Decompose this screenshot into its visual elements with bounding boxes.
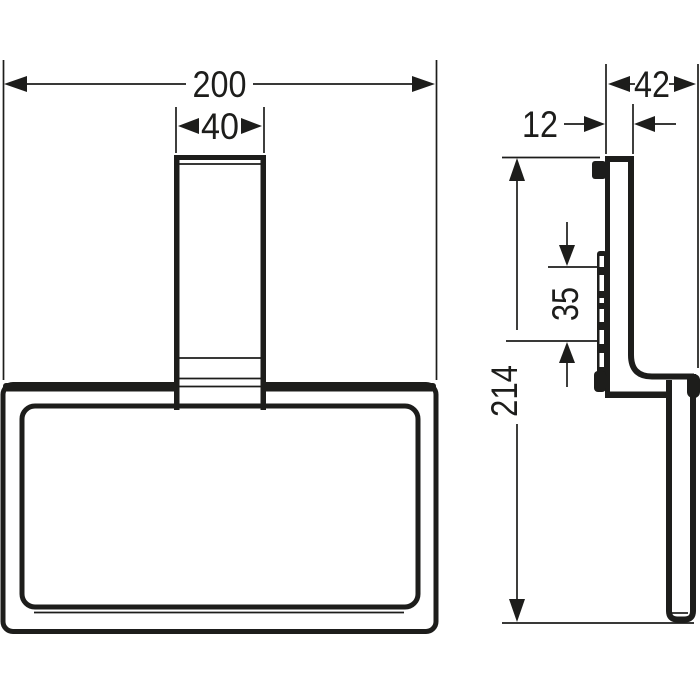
post-top-edge bbox=[174, 155, 266, 160]
rail-slot bbox=[600, 256, 605, 267]
arrow-down-icon bbox=[509, 599, 525, 622]
dim-label-overall-depth: 42 bbox=[634, 64, 670, 105]
arrow-up-icon bbox=[509, 158, 525, 181]
arrow-left-icon bbox=[634, 116, 655, 132]
rail-bottom-tab bbox=[594, 371, 606, 392]
post-left-edge bbox=[174, 155, 180, 410]
side-view: 42 12 214 35 bbox=[484, 64, 700, 623]
towel-ring-dimension-drawing: 200 40 bbox=[0, 0, 700, 700]
arrow-right-icon bbox=[584, 116, 605, 132]
front-view: 200 40 bbox=[3, 60, 437, 632]
post-right-edge bbox=[261, 155, 267, 410]
arrow-up-icon bbox=[559, 342, 575, 363]
arrow-left-icon bbox=[608, 76, 630, 92]
towel-ring-side bbox=[592, 156, 700, 620]
technical-drawing-canvas: 200 40 bbox=[0, 0, 700, 700]
arrow-right-icon bbox=[412, 76, 435, 92]
dim-label-plate-depth: 12 bbox=[522, 104, 558, 145]
arrow-left-icon bbox=[178, 118, 199, 134]
dimension-overall-height: 214 bbox=[484, 158, 525, 622]
ring-outer-outline bbox=[3, 385, 436, 632]
plate-front-edge-and-arm-top bbox=[631, 161, 694, 377]
arrow-right-icon bbox=[674, 76, 696, 92]
dimension-mounting-span: 35 bbox=[545, 222, 586, 387]
ring-top-joint bbox=[687, 374, 700, 398]
towel-ring-front bbox=[3, 155, 436, 632]
dimension-post-width: 40 bbox=[178, 106, 262, 147]
rail-slot bbox=[600, 298, 605, 303]
rail-slot bbox=[600, 309, 605, 322]
rail-slot bbox=[600, 275, 605, 291]
dim-label-mounting-span: 35 bbox=[545, 287, 586, 321]
rail-slot bbox=[600, 330, 605, 344]
arrow-right-icon bbox=[241, 118, 262, 134]
mounting-pin bbox=[592, 161, 606, 179]
mounting-rail bbox=[594, 251, 607, 392]
dimension-overall-width: 200 bbox=[4, 64, 435, 105]
ring-inner-opening bbox=[22, 406, 418, 607]
arrow-down-icon bbox=[559, 245, 575, 266]
dim-label-post-width: 40 bbox=[201, 106, 239, 147]
dim-label-overall-width: 200 bbox=[193, 64, 247, 105]
dim-label-overall-height: 214 bbox=[484, 365, 525, 417]
arm-bottom-edge bbox=[605, 392, 668, 399]
arrow-left-icon bbox=[4, 76, 27, 92]
ring-profile bbox=[669, 374, 693, 620]
dimension-overall-depth: 42 bbox=[608, 64, 696, 105]
dimension-plate-depth: 12 bbox=[522, 104, 676, 145]
rail-slot bbox=[600, 353, 605, 367]
